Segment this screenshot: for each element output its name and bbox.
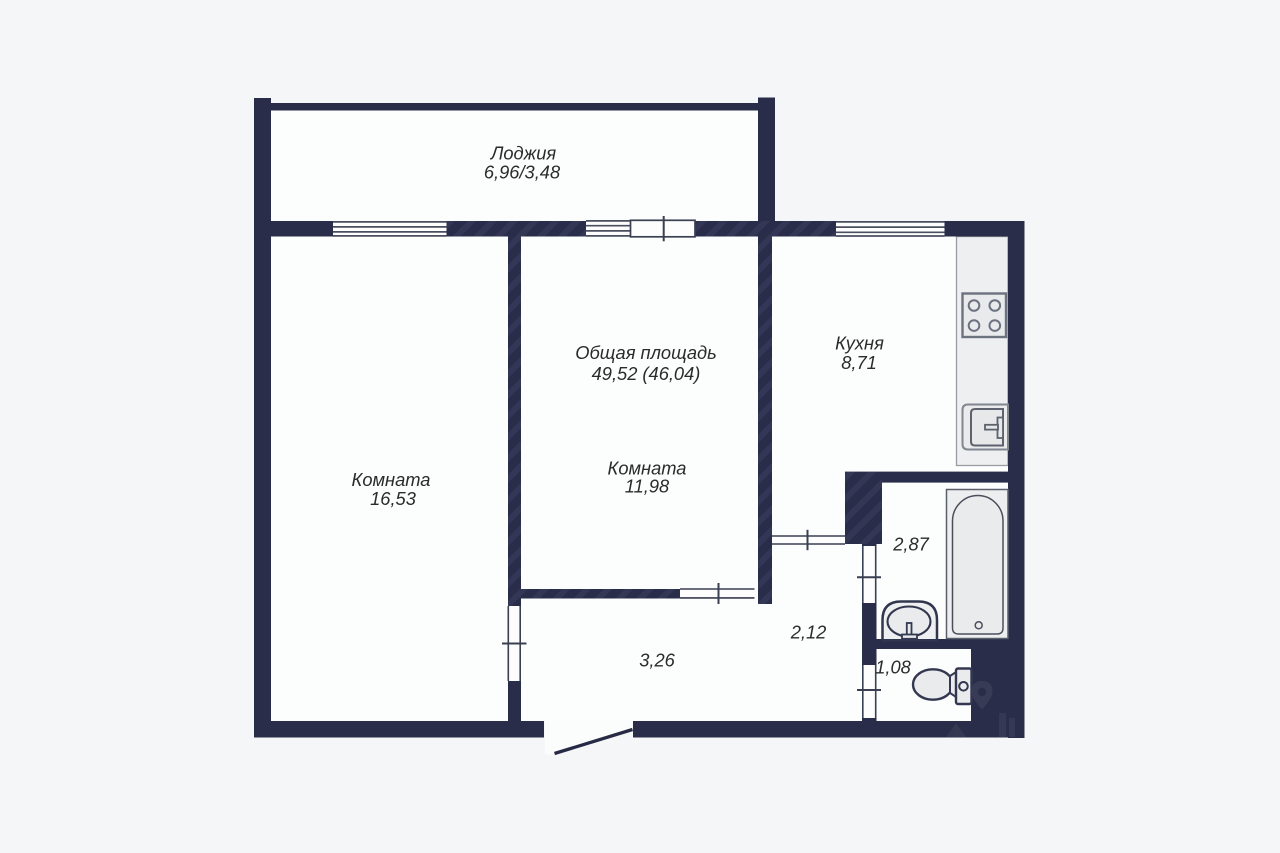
svg-text:Кухня: Кухня	[835, 333, 884, 354]
svg-text:Лоджия: Лоджия	[490, 143, 557, 164]
svg-text:1,08: 1,08	[875, 657, 911, 678]
svg-text:49,52 (46,04): 49,52 (46,04)	[592, 363, 701, 384]
svg-text:8,71: 8,71	[841, 352, 877, 373]
svg-text:2,87: 2,87	[892, 534, 929, 555]
svg-text:16,53: 16,53	[370, 488, 416, 509]
svg-text:2,12: 2,12	[790, 622, 827, 643]
svg-text:3,26: 3,26	[639, 650, 675, 671]
svg-text:Комната: Комната	[352, 469, 431, 490]
svg-text:11,98: 11,98	[625, 476, 670, 497]
svg-text:6,96/3,48: 6,96/3,48	[484, 162, 561, 183]
svg-text:Общая площадь: Общая площадь	[575, 342, 716, 363]
